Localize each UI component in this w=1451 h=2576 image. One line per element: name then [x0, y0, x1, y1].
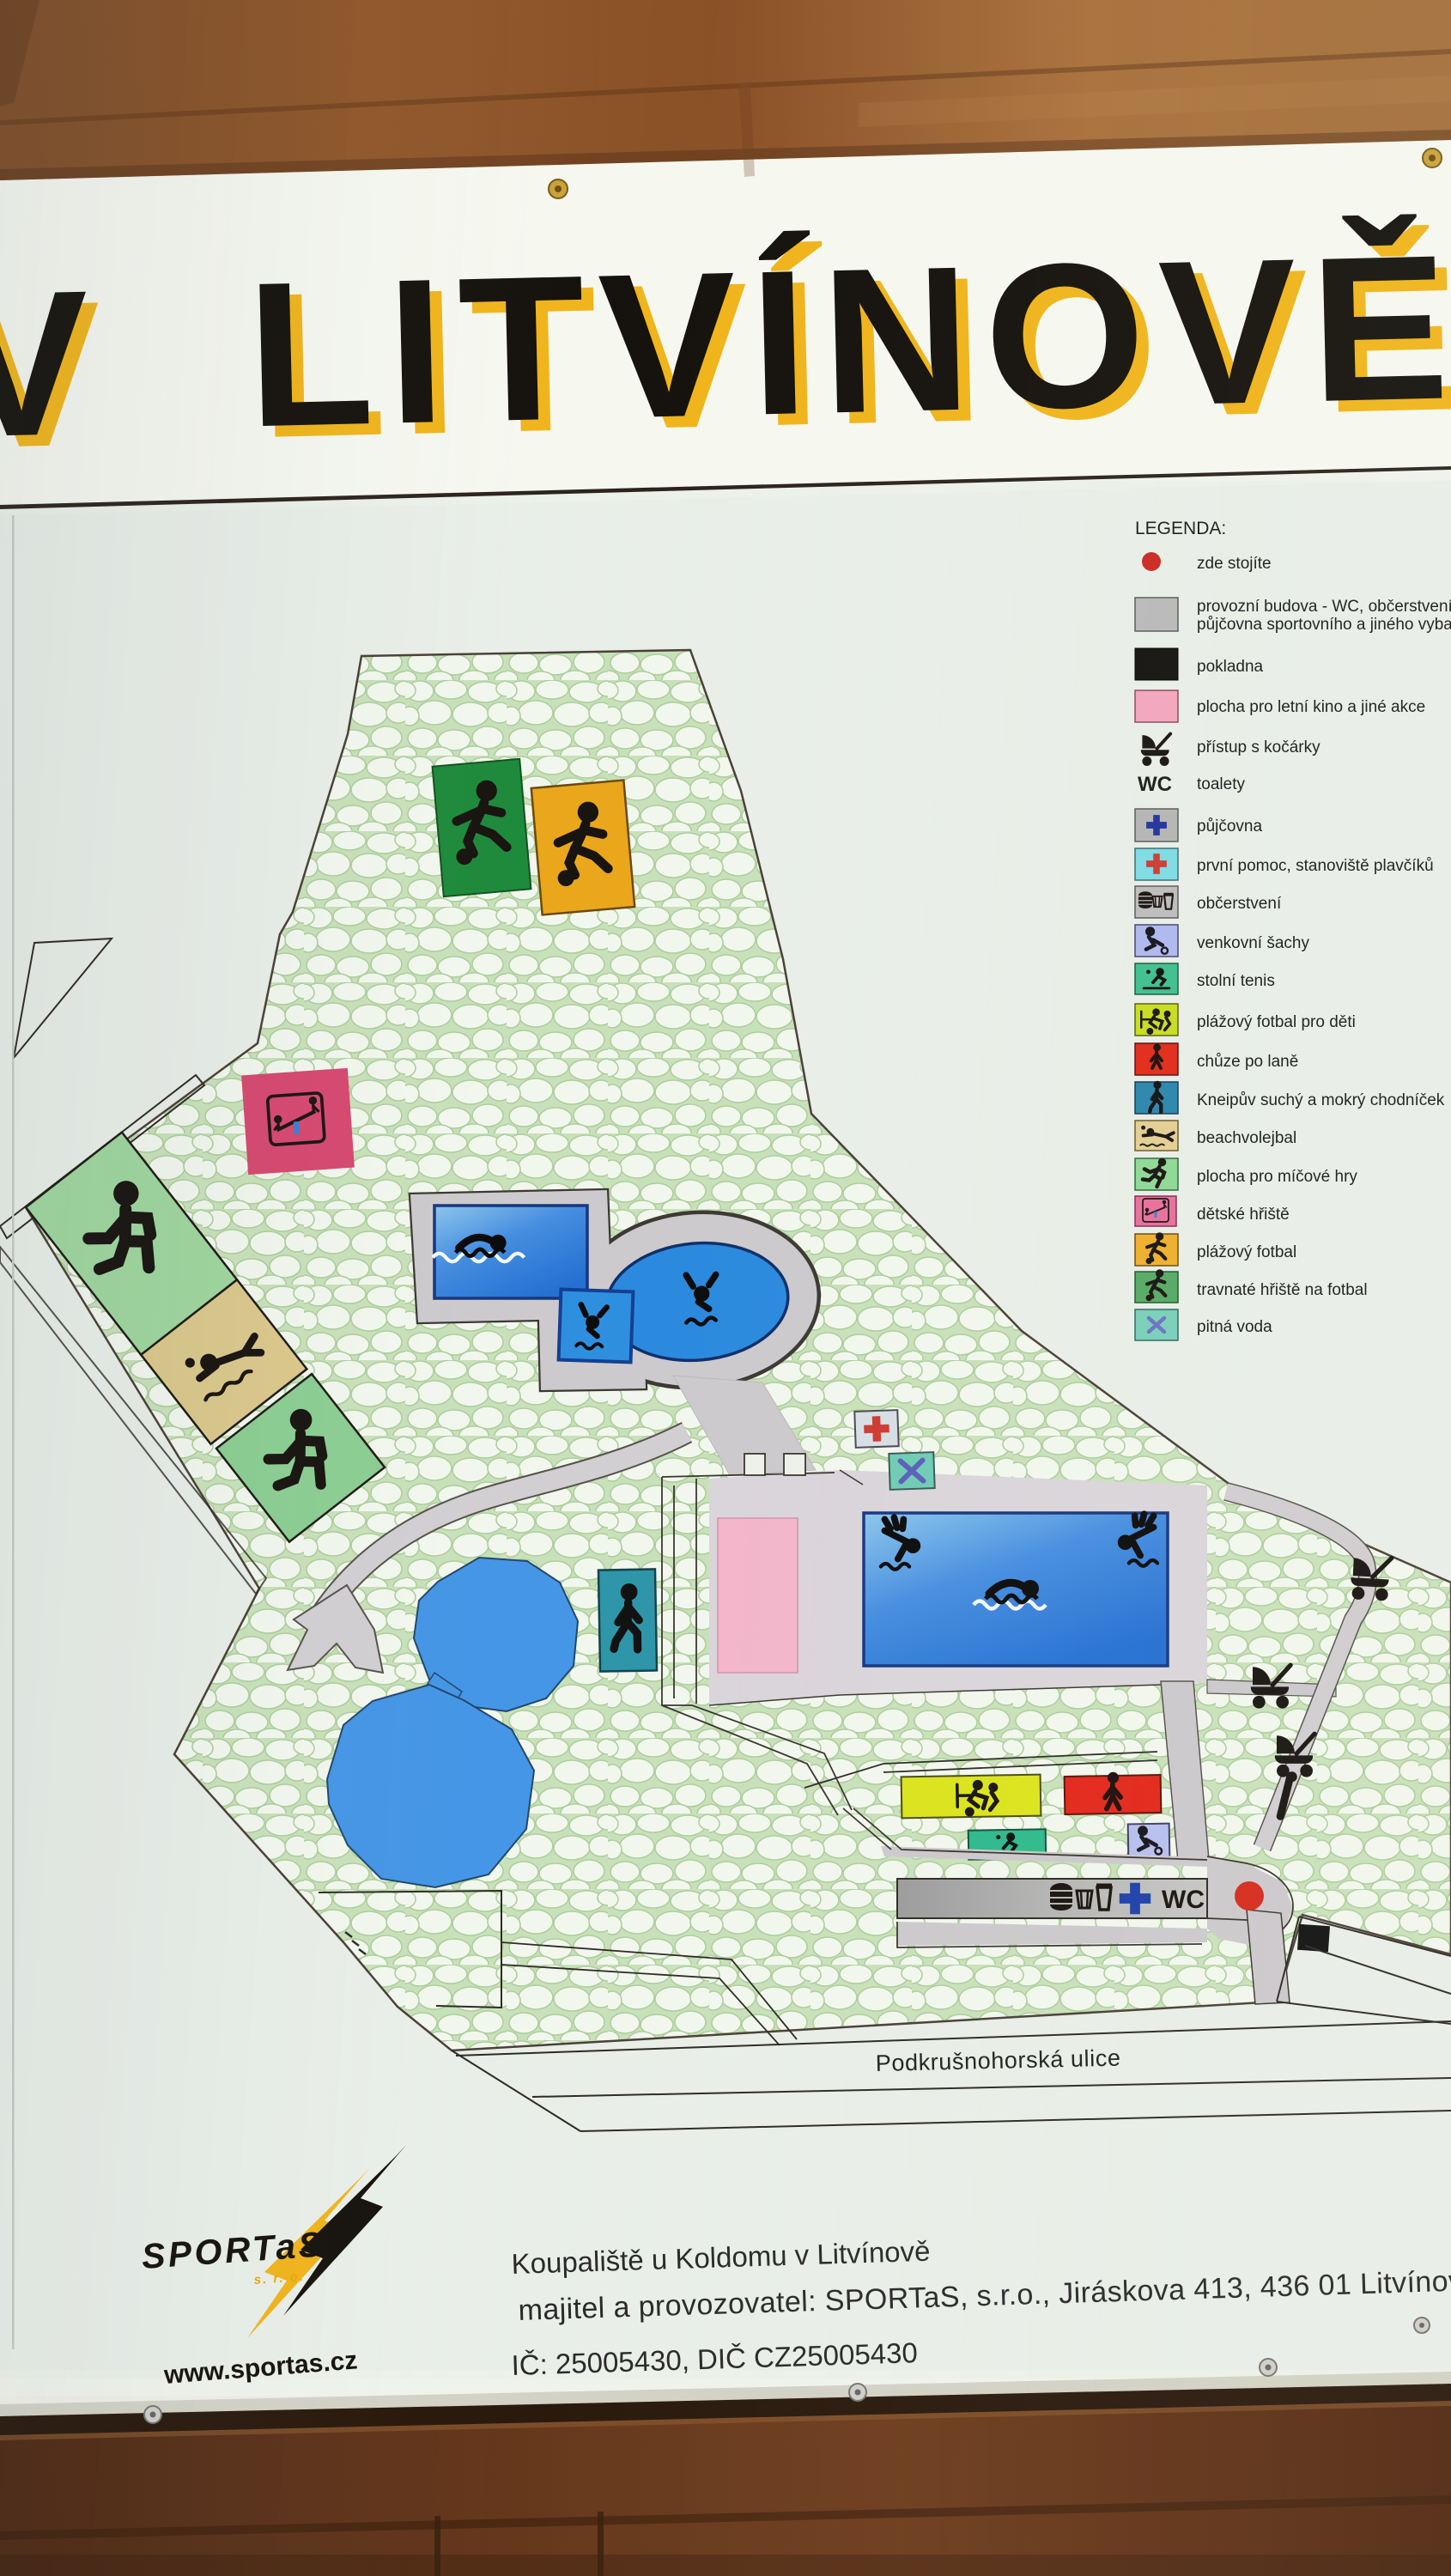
svg-text:toalety: toalety: [1197, 775, 1245, 793]
svg-text:chůze po laně: chůze po laně: [1197, 1053, 1298, 1071]
svg-text:WC: WC: [1138, 773, 1172, 796]
svg-text:pokladna: pokladna: [1197, 658, 1264, 676]
svg-text:provozní budova - WC, občerstv: provozní budova - WC, občerstvení,: [1197, 598, 1451, 616]
svg-text:občerstvení: občerstvení: [1197, 895, 1282, 913]
svg-text:plocha pro letní kino a jiné a: plocha pro letní kino a jiné akce: [1197, 698, 1425, 716]
svg-text:V: V: [0, 247, 92, 481]
svg-text:zde stojíte: zde stojíte: [1197, 555, 1272, 573]
svg-text:LEGENDA:: LEGENDA:: [1135, 519, 1226, 538]
svg-text:půjčovna: půjčovna: [1197, 817, 1262, 835]
svg-text:stolní tenis: stolní tenis: [1197, 972, 1275, 990]
svg-text:LITVÍNOVĚ: LITVÍNOVĚ: [245, 211, 1451, 470]
svg-text:přístup s kočárky: přístup s kočárky: [1197, 738, 1320, 756]
svg-text:pitná voda: pitná voda: [1197, 1318, 1272, 1336]
svg-text:venkovní šachy: venkovní šachy: [1197, 934, 1309, 952]
svg-text:plocha pro míčové hry: plocha pro míčové hry: [1197, 1168, 1357, 1186]
svg-text:plážový fotbal pro děti: plážový fotbal pro děti: [1197, 1013, 1356, 1031]
svg-text:plážový fotbal: plážový fotbal: [1197, 1243, 1296, 1261]
svg-text:první pomoc, stanoviště plavčí: první pomoc, stanoviště plavčíků: [1197, 857, 1434, 875]
svg-text:beachvolejbal: beachvolejbal: [1197, 1129, 1296, 1147]
svg-text:WC: WC: [1162, 1886, 1205, 1914]
svg-text:dětské hřiště: dětské hřiště: [1197, 1206, 1290, 1224]
svg-text:travnaté hřiště na fotbal: travnaté hřiště na fotbal: [1197, 1281, 1368, 1299]
svg-text:půjčovna sportovního a jiného: půjčovna sportovního a jiného vybavení: [1197, 616, 1451, 634]
svg-text:Kneipův suchý a mokrý chodníče: Kneipův suchý a mokrý chodníček: [1197, 1091, 1445, 1109]
